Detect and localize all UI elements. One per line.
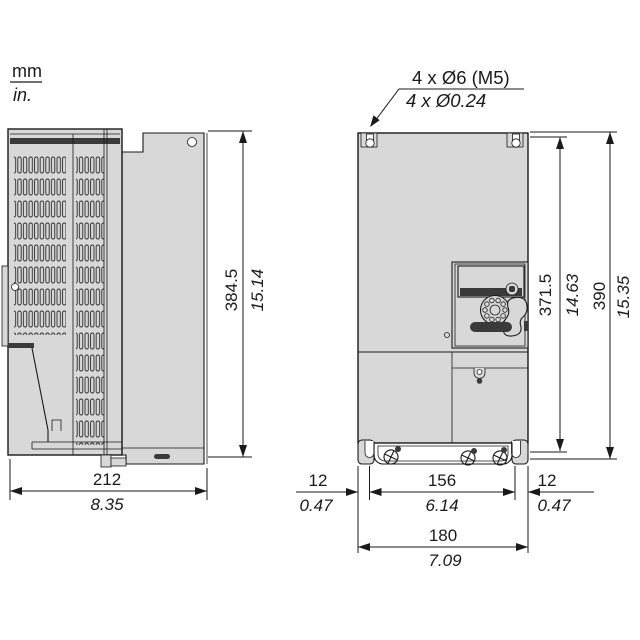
front-hole-spacing-in: 6.14 xyxy=(425,496,458,515)
plate-hole xyxy=(188,138,197,147)
front-left-offset-in: 0.47 xyxy=(299,496,333,515)
control-panel xyxy=(452,262,528,348)
mounting-hole-callout-imperial: 4 x Ø0.24 xyxy=(406,90,486,111)
bottom-tab xyxy=(101,455,111,467)
front-view-drawing xyxy=(358,133,528,467)
front-total-height-in: 15.35 xyxy=(614,275,633,318)
side-height-mm: 384.5 xyxy=(222,269,241,312)
vent-grid-left xyxy=(14,155,66,335)
small-screw xyxy=(471,448,477,454)
mounting-slot-bottom-right xyxy=(512,441,521,458)
front-right-offset-in: 0.47 xyxy=(537,496,571,515)
side-depth-in: 8.35 xyxy=(90,495,124,514)
unit-imperial-label: in. xyxy=(13,85,32,105)
top-vent-band xyxy=(10,138,120,144)
side-view-drawing xyxy=(2,129,207,467)
mounting-plate-side xyxy=(122,133,204,464)
cover-screw xyxy=(445,333,450,338)
dimension-drawing-page: mm in. 4 x Ø6 (M5) 4 x Ø0.24 384.5 15.14… xyxy=(0,0,640,640)
mounting-hole-callout-metric: 4 x Ø6 (M5) xyxy=(412,67,510,88)
plate-bottom-slot xyxy=(154,454,170,459)
vent-grid-right xyxy=(76,155,104,445)
panel-button xyxy=(506,283,518,295)
bottom-step xyxy=(111,458,126,466)
mounting-slot-top-left xyxy=(361,133,377,147)
front-right-offset-mm: 12 xyxy=(538,471,557,490)
mounting-slot-bottom-left xyxy=(365,441,374,458)
unit-metric-label: mm xyxy=(12,61,42,81)
front-total-height-mm: 390 xyxy=(590,282,609,310)
front-mounting-height-mm: 371.5 xyxy=(536,274,555,317)
terminal-tray xyxy=(374,443,512,467)
panel-bottom-slot xyxy=(470,322,512,332)
front-total-width-mm: 180 xyxy=(429,526,457,545)
front-hole-spacing-mm: 156 xyxy=(428,471,456,490)
front-mounting-height-in: 14.63 xyxy=(563,273,582,316)
small-screw xyxy=(395,446,401,452)
technical-drawing: mm in. 4 x Ø6 (M5) 4 x Ø0.24 384.5 15.14… xyxy=(0,0,640,640)
din-clip xyxy=(2,266,8,346)
front-total-width-in: 7.09 xyxy=(428,551,462,570)
side-depth-mm: 212 xyxy=(93,470,121,489)
small-screw xyxy=(501,447,507,453)
side-height-in: 15.14 xyxy=(248,269,267,312)
front-left-offset-mm: 12 xyxy=(309,471,328,490)
mounting-slot-top-right xyxy=(507,133,523,147)
